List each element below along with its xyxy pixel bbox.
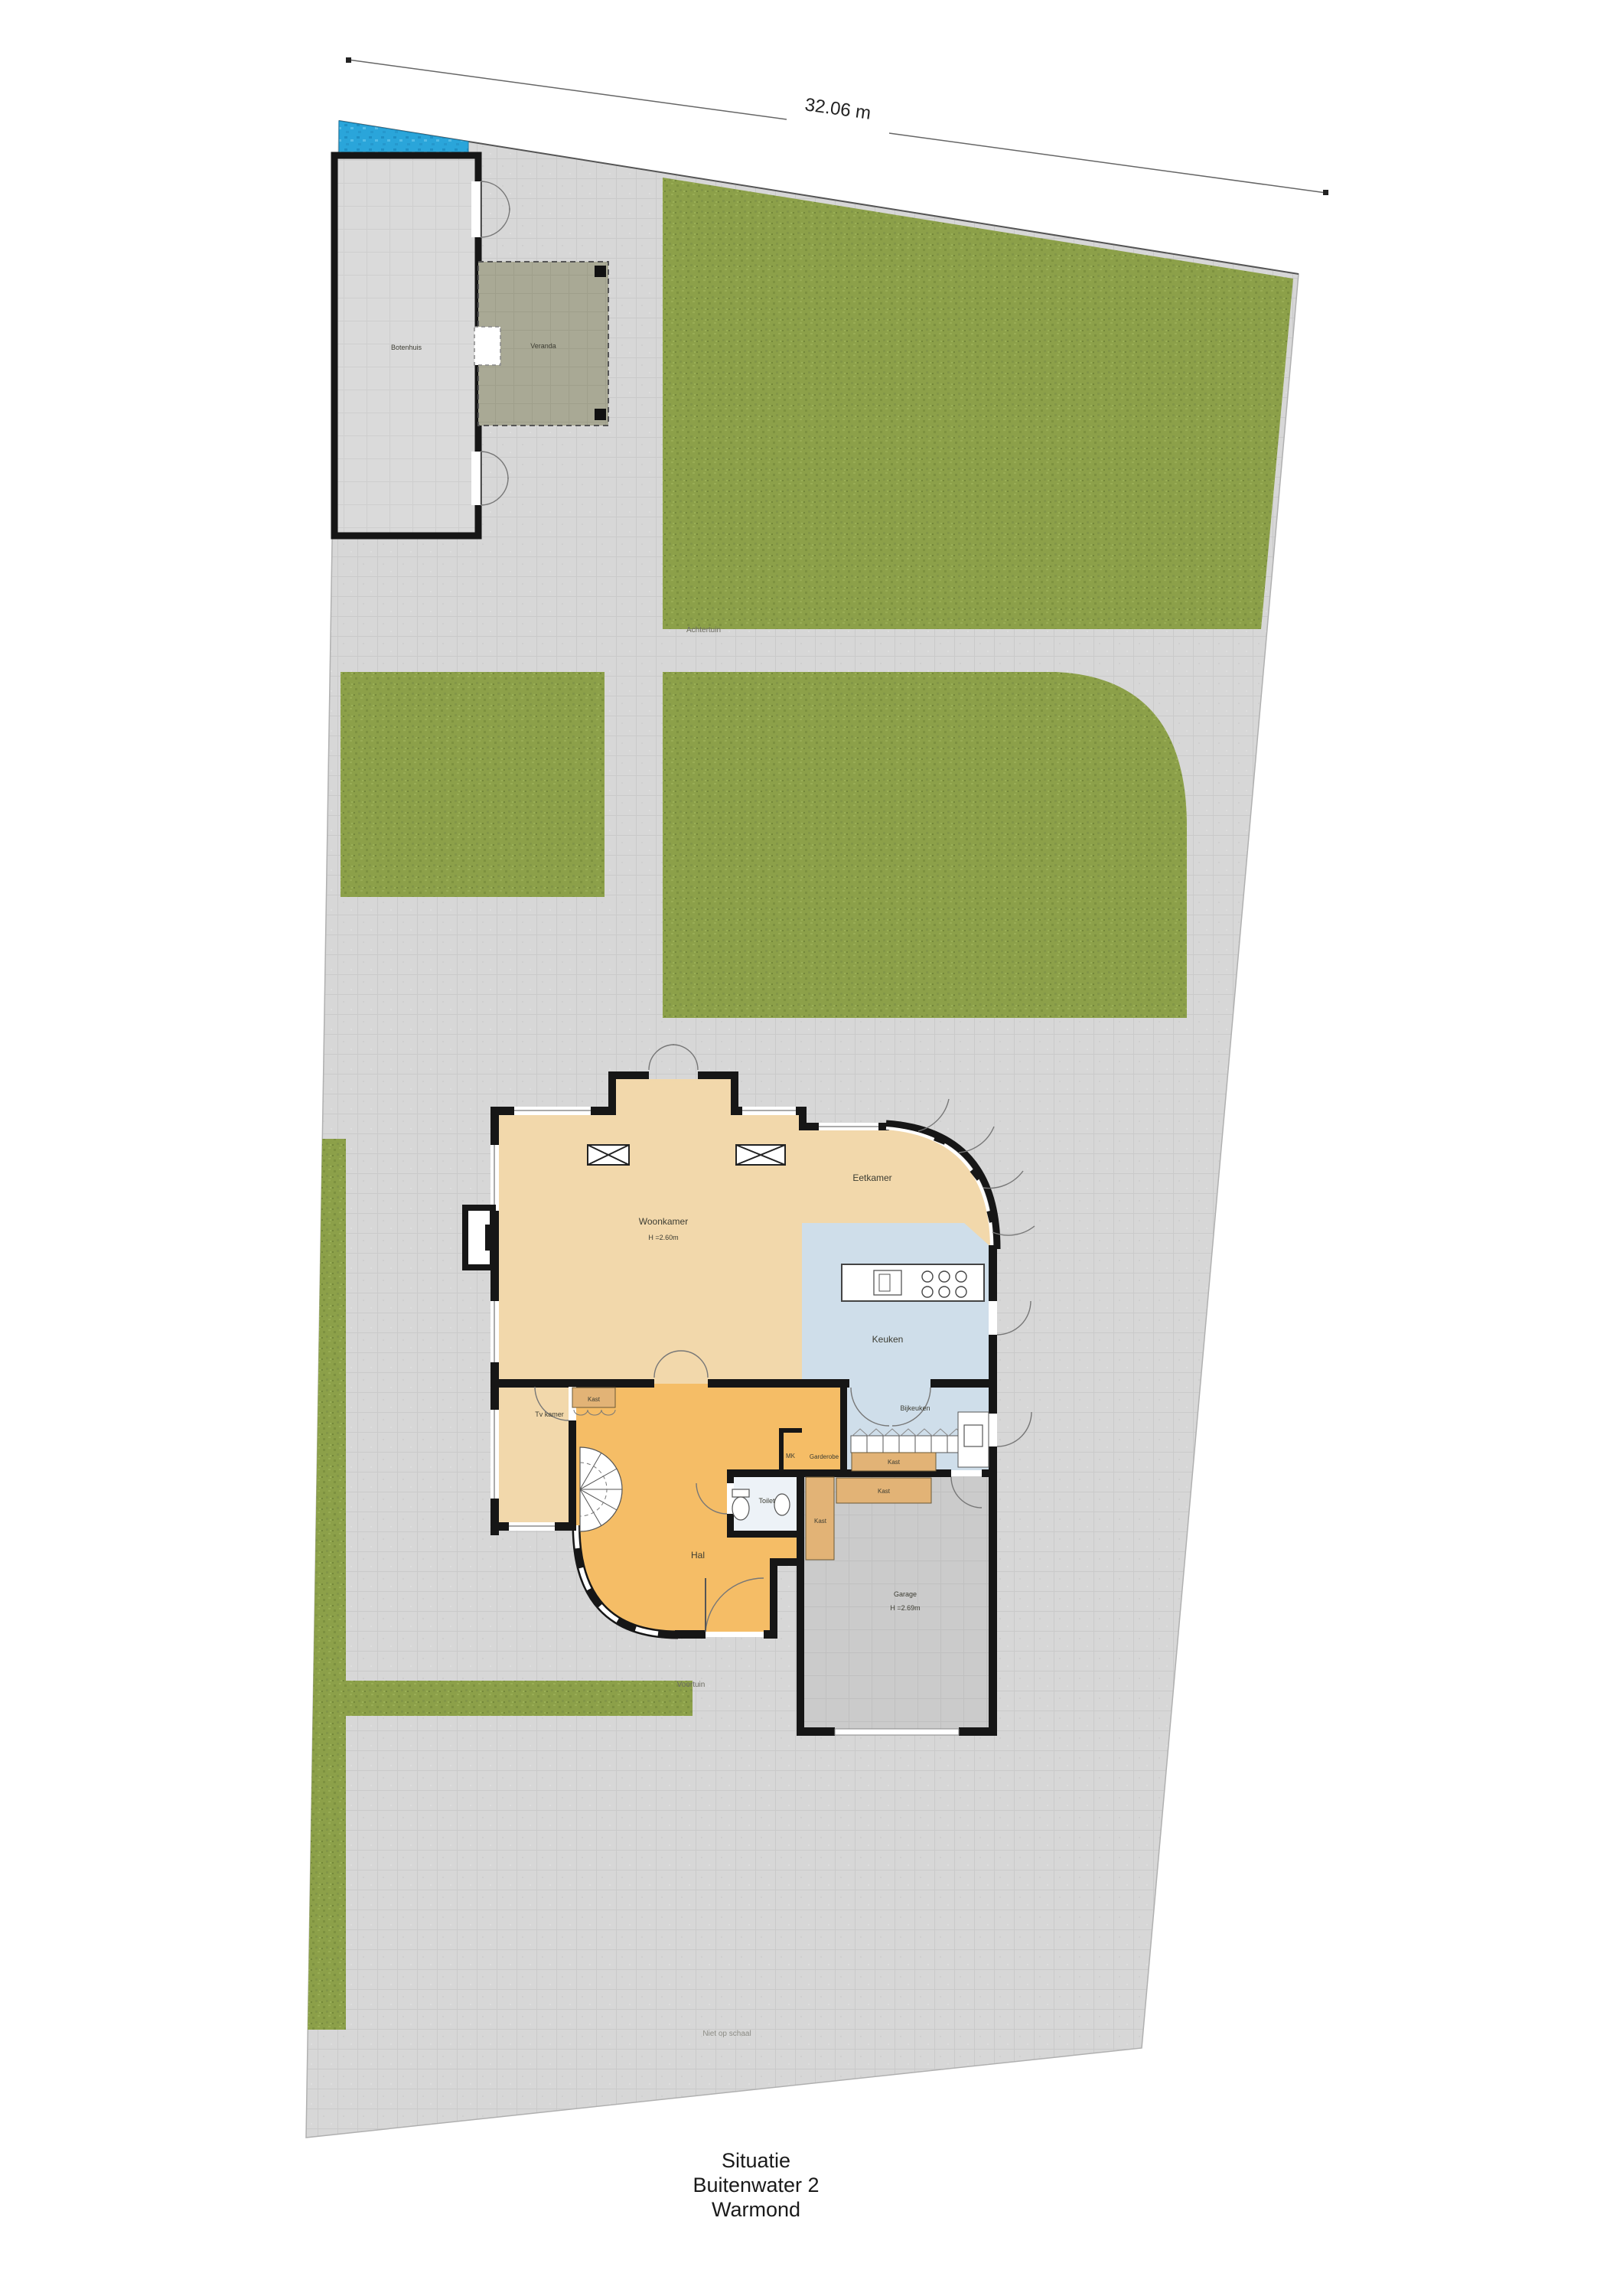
- keuken-floor: [802, 1223, 993, 1384]
- dimension-end-left: [346, 57, 351, 63]
- window: [490, 1410, 499, 1499]
- dimension-line-left: [348, 60, 787, 119]
- wall: [959, 1727, 997, 1736]
- woonkamer-height-label: H =2.60m: [648, 1234, 678, 1241]
- wall: [779, 1428, 784, 1471]
- window: [509, 1522, 555, 1531]
- window: [490, 1145, 499, 1211]
- voortuin-label: Voortuin: [677, 1681, 706, 1689]
- window: [819, 1123, 878, 1130]
- fireplace: [462, 1205, 496, 1270]
- tv-kamer-floor: [494, 1384, 572, 1527]
- situatie-plan-page: 32.06 m Botenhuis Veranda Achtertuin: [0, 0, 1623, 2296]
- hal-label: Hal: [691, 1550, 705, 1561]
- garage-height-label: H =2.69m: [890, 1604, 920, 1612]
- garage-label: Garage: [894, 1590, 917, 1598]
- dimension-end-right: [1323, 190, 1328, 195]
- veranda-label: Veranda: [530, 342, 556, 350]
- back-door-opening: [989, 1414, 997, 1446]
- kitchen-island: [842, 1264, 984, 1301]
- wall: [770, 1558, 804, 1566]
- veranda-post-top: [595, 266, 606, 277]
- window: [514, 1107, 591, 1115]
- wall: [982, 1469, 997, 1477]
- wall: [797, 1473, 804, 1736]
- wall: [840, 1382, 847, 1473]
- toilet-bowl-icon: [732, 1497, 749, 1520]
- site-plan-canvas: 32.06 m Botenhuis Veranda Achtertuin: [0, 0, 1623, 2296]
- plan-title: Situatie: [722, 2149, 790, 2172]
- keuken-label: Keuken: [872, 1334, 904, 1345]
- kast-label: Kast: [814, 1518, 827, 1525]
- window: [742, 1107, 796, 1115]
- water: [339, 121, 468, 155]
- wall: [675, 1630, 706, 1639]
- plan-address: Buitenwater 2: [693, 2174, 819, 2197]
- garage-door: [835, 1729, 959, 1735]
- window: [490, 1301, 499, 1362]
- utility-counter: [958, 1412, 989, 1467]
- tv-kamer-label: Tv kamer: [535, 1411, 564, 1418]
- wall: [764, 1630, 777, 1639]
- botenhuis-door-opening-bottom: [471, 452, 481, 505]
- meterkast-label: MK: [786, 1453, 796, 1459]
- botenhuis-label: Botenhuis: [391, 344, 422, 351]
- kast-label: Kast: [878, 1488, 891, 1495]
- wall: [608, 1075, 616, 1115]
- fixed-window-x: [736, 1145, 785, 1165]
- toilet-label: Toilet: [758, 1497, 775, 1505]
- kast-label: Kast: [588, 1396, 601, 1403]
- wall: [989, 1446, 997, 1736]
- plan-city: Warmond: [712, 2198, 800, 2221]
- dimension-line-right: [889, 133, 1326, 193]
- bijkeuken-label: Bijkeuken: [900, 1404, 930, 1412]
- veranda: Veranda: [474, 262, 608, 426]
- wall: [797, 1727, 835, 1736]
- grass-front-strip: [338, 1681, 693, 1716]
- veranda-table: [474, 327, 500, 365]
- scale-note-label: Niet op schaal: [702, 2030, 751, 2038]
- dimension-label: 32.06 m: [803, 94, 872, 124]
- fixed-window-x: [588, 1145, 629, 1165]
- botenhuis-door-opening-top: [471, 181, 481, 237]
- side-door-opening: [989, 1301, 997, 1335]
- achtertuin-label: Achtertuin: [686, 626, 721, 634]
- grass-mid-left: [341, 672, 605, 897]
- wall: [708, 1379, 849, 1388]
- woonkamer-label: Woonkamer: [639, 1216, 688, 1227]
- wall: [930, 1379, 997, 1388]
- eetkamer-label: Eetkamer: [852, 1172, 891, 1183]
- garage-internal-door-opening: [951, 1470, 982, 1476]
- front-door-opening: [706, 1632, 764, 1637]
- wall: [770, 1563, 777, 1638]
- toilet-tank-icon: [732, 1489, 749, 1497]
- kast-label: Kast: [888, 1459, 901, 1466]
- title-block: Situatie Buitenwater 2 Warmond: [693, 2149, 819, 2221]
- woonkamer-floor: [494, 1079, 802, 1384]
- garderobe-label: Garderobe: [810, 1453, 839, 1460]
- grass-back-right: [663, 178, 1293, 629]
- grass-mid-right: [663, 672, 1187, 1018]
- veranda-post-bottom: [595, 409, 606, 420]
- wall: [727, 1531, 803, 1538]
- grass-left-strip: [308, 1139, 346, 2030]
- bidet-icon: [774, 1494, 790, 1515]
